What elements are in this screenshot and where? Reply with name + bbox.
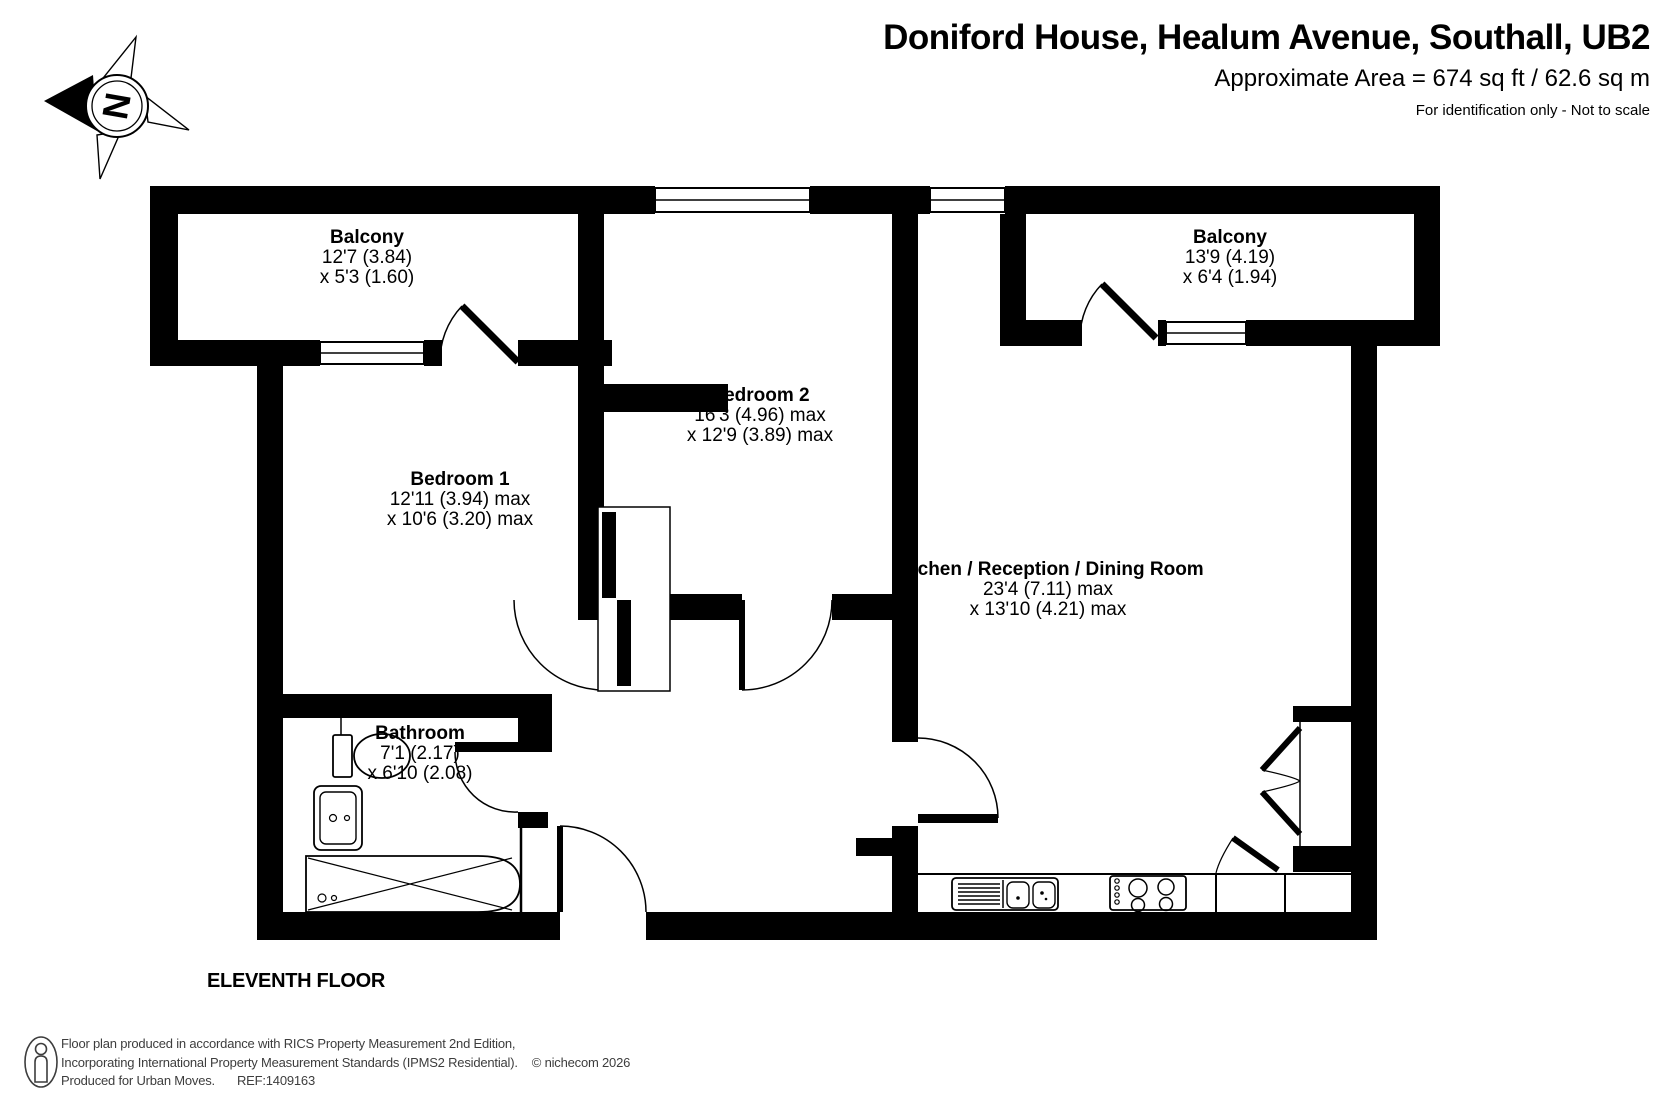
header: Doniford House, Healum Avenue, Southall,… [883,18,1650,119]
footer-text: Produced for Urban Moves. [61,1072,215,1091]
room-dim: x 5'3 (1.60) [267,268,467,288]
footer: Floor plan produced in accordance with R… [61,1035,630,1091]
room-label-bathroom: Bathroom 7'1 (2.17) x 6'10 (2.08) [330,724,510,784]
room-name: Bedroom 2 [650,386,870,406]
room-dim: x 6'10 (2.08) [330,764,510,784]
page-title: Doniford House, Healum Avenue, Southall,… [883,18,1650,58]
compass-icon: N [44,37,189,179]
reference-number: REF:1409163 [237,1072,315,1091]
wardrobe [598,507,670,691]
identification-note: For identification only - Not to scale [883,102,1650,119]
window [1166,322,1246,344]
room-dim: 16'3 (4.96) max [650,406,870,426]
approximate-area: Approximate Area = 674 sq ft / 62.6 sq m [883,65,1650,93]
room-dim: x 12'9 (3.89) max [650,426,870,446]
footer-line-2: Incorporating International Property Mea… [61,1054,630,1073]
floorplan-page: N [0,0,1673,1115]
window [320,342,424,364]
room-label-balcony-right: Balcony 13'9 (4.19) x 6'4 (1.94) [1130,228,1330,288]
room-label-bedroom-1: Bedroom 1 12'11 (3.94) max x 10'6 (3.20)… [350,470,570,530]
room-name: Balcony [1130,228,1330,248]
window [930,188,1005,212]
room-dim: 7'1 (2.17) [330,744,510,764]
person-icon [25,1037,57,1087]
room-name: Bathroom [330,724,510,744]
room-dim: 13'9 (4.19) [1130,248,1330,268]
hob [1110,876,1186,912]
room-dim: 12'7 (3.84) [267,248,467,268]
footer-text: Floor plan produced in accordance with R… [61,1035,515,1054]
room-dim: x 13'10 (4.21) max [888,600,1208,620]
kitchen-fixtures [952,876,1186,912]
copyright-text: © nichecom 2026 [532,1054,630,1073]
floor-label: ELEVENTH FLOOR [207,970,385,993]
footer-line-3: Produced for Urban Moves. REF:1409163 [61,1072,630,1091]
room-name: Balcony [267,228,467,248]
room-dim: 23'4 (7.11) max [888,580,1208,600]
room-dim: x 6'4 (1.94) [1130,268,1330,288]
room-dim: x 10'6 (3.20) max [350,510,570,530]
window [655,188,810,212]
footer-text: Incorporating International Property Mea… [61,1054,518,1073]
room-name: Bedroom 1 [350,470,570,490]
floorplan-drawing: N [0,0,1673,1115]
room-name: Kitchen / Reception / Dining Room [888,560,1208,580]
room-dim: 12'11 (3.94) max [350,490,570,510]
room-label-kitchen: Kitchen / Reception / Dining Room 23'4 (… [888,560,1208,620]
room-label-balcony-left: Balcony 12'7 (3.84) x 5'3 (1.60) [267,228,467,288]
kitchen-sink [952,878,1058,910]
footer-line-1: Floor plan produced in accordance with R… [61,1035,630,1054]
room-label-bedroom-2: Bedroom 2 16'3 (4.96) max x 12'9 (3.89) … [650,386,870,446]
